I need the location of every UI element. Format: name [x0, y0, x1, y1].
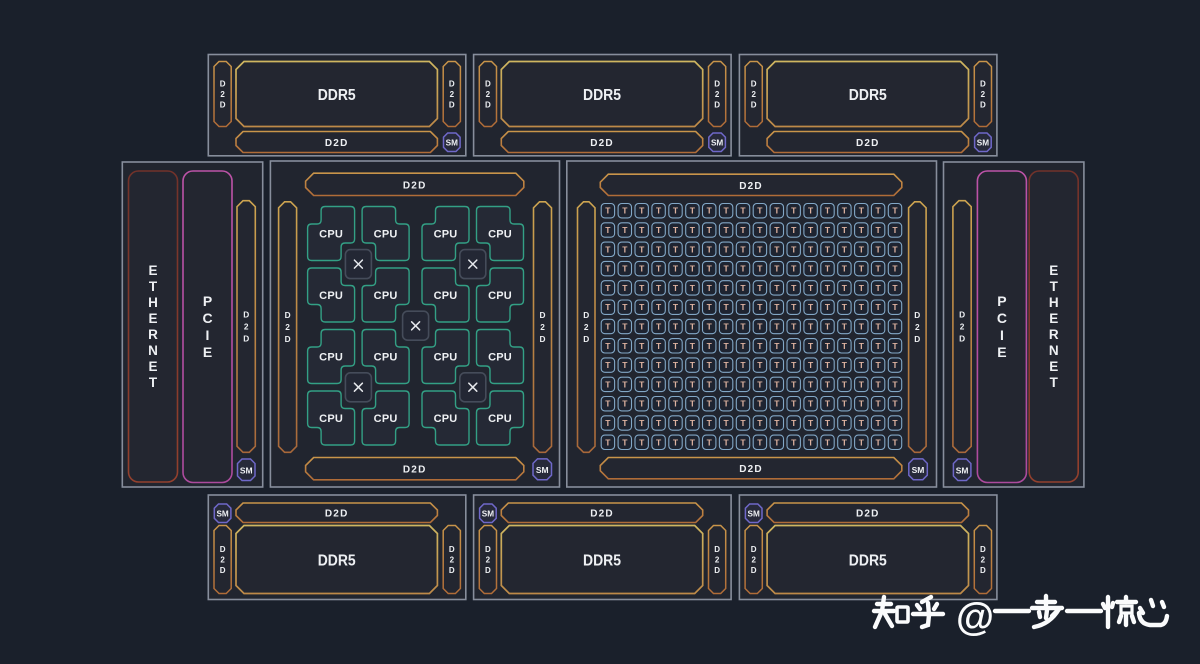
svg-text:T: T: [605, 341, 611, 351]
svg-text:T: T: [740, 264, 746, 274]
svg-text:T: T: [791, 225, 797, 235]
svg-text:T: T: [690, 379, 696, 389]
svg-text:T: T: [825, 341, 831, 351]
svg-text:T: T: [673, 399, 679, 409]
svg-text:T: T: [875, 341, 881, 351]
svg-text:T: T: [842, 225, 848, 235]
svg-text:H: H: [1049, 295, 1059, 310]
svg-text:D: D: [220, 545, 226, 554]
svg-text:2: 2: [220, 90, 225, 99]
svg-text:D: D: [285, 310, 291, 320]
svg-text:D2D: D2D: [590, 138, 614, 149]
svg-text:D: D: [449, 566, 455, 575]
svg-text:T: T: [808, 360, 814, 370]
svg-text:T: T: [825, 302, 831, 312]
svg-text:D: D: [714, 545, 720, 554]
svg-text:T: T: [707, 302, 713, 312]
svg-text:T: T: [740, 360, 746, 370]
svg-text:2: 2: [715, 555, 720, 564]
svg-text:D: D: [980, 566, 986, 575]
svg-text:T: T: [673, 379, 679, 389]
svg-text:D: D: [751, 79, 757, 88]
svg-text:T: T: [622, 322, 628, 332]
svg-text:E: E: [997, 344, 1006, 360]
svg-text:D: D: [714, 79, 720, 88]
svg-text:T: T: [656, 399, 662, 409]
svg-text:T: T: [622, 244, 628, 254]
svg-text:T: T: [690, 264, 696, 274]
svg-text:DDR5: DDR5: [583, 87, 621, 104]
svg-text:T: T: [774, 225, 780, 235]
svg-text:T: T: [875, 418, 881, 428]
svg-text:CPU: CPU: [319, 413, 343, 425]
svg-text:DDR5: DDR5: [318, 87, 356, 104]
svg-text:D: D: [914, 310, 920, 320]
svg-text:T: T: [149, 279, 158, 294]
svg-text:T: T: [690, 360, 696, 370]
svg-text:T: T: [842, 264, 848, 274]
svg-text:D2D: D2D: [403, 465, 427, 476]
svg-text:T: T: [673, 302, 679, 312]
svg-text:T: T: [757, 225, 763, 235]
svg-text:CPU: CPU: [374, 352, 398, 364]
svg-text:D2D: D2D: [739, 181, 763, 192]
svg-text:T: T: [723, 360, 729, 370]
svg-text:T: T: [723, 418, 729, 428]
svg-text:CPU: CPU: [374, 229, 398, 241]
svg-text:D: D: [914, 334, 920, 344]
svg-text:SM: SM: [977, 139, 989, 148]
svg-text:N: N: [1049, 343, 1059, 358]
svg-text:T: T: [605, 379, 611, 389]
svg-text:T: T: [149, 375, 158, 390]
svg-text:T: T: [605, 264, 611, 274]
svg-text:T: T: [707, 264, 713, 274]
svg-text:D: D: [980, 100, 986, 109]
svg-text:T: T: [774, 437, 780, 447]
svg-text:CPU: CPU: [434, 413, 458, 425]
svg-text:I: I: [206, 327, 210, 343]
svg-text:T: T: [622, 264, 628, 274]
svg-text:T: T: [774, 360, 780, 370]
svg-text:T: T: [605, 283, 611, 293]
svg-text:T: T: [723, 437, 729, 447]
svg-text:SM: SM: [536, 465, 549, 475]
svg-text:2: 2: [915, 322, 920, 332]
svg-text:T: T: [808, 264, 814, 274]
svg-text:E: E: [148, 359, 157, 374]
svg-text:2: 2: [450, 90, 455, 99]
svg-text:T: T: [774, 399, 780, 409]
svg-text:N: N: [148, 343, 158, 358]
svg-text:T: T: [656, 322, 662, 332]
svg-text:T: T: [723, 244, 729, 254]
svg-text:DDR5: DDR5: [318, 553, 356, 570]
svg-text:T: T: [707, 360, 713, 370]
svg-text:T: T: [639, 244, 645, 254]
svg-text:T: T: [875, 379, 881, 389]
svg-text:CPU: CPU: [374, 290, 398, 302]
svg-text:CPU: CPU: [434, 352, 458, 364]
svg-text:T: T: [656, 379, 662, 389]
svg-text:E: E: [1049, 311, 1058, 326]
svg-text:T: T: [639, 206, 645, 216]
svg-text:D: D: [285, 334, 291, 344]
svg-text:H: H: [148, 295, 158, 310]
svg-text:T: T: [707, 379, 713, 389]
svg-text:DDR5: DDR5: [849, 87, 887, 104]
svg-text:T: T: [673, 264, 679, 274]
svg-text:T: T: [639, 264, 645, 274]
svg-text:T: T: [605, 225, 611, 235]
svg-text:T: T: [892, 437, 898, 447]
svg-text:T: T: [673, 418, 679, 428]
svg-text:T: T: [774, 283, 780, 293]
svg-text:2: 2: [751, 90, 756, 99]
svg-text:2: 2: [244, 321, 249, 331]
svg-text:T: T: [656, 244, 662, 254]
svg-text:T: T: [707, 225, 713, 235]
svg-text:T: T: [808, 206, 814, 216]
svg-text:T: T: [825, 379, 831, 389]
svg-text:T: T: [825, 206, 831, 216]
svg-text:D: D: [714, 100, 720, 109]
svg-text:T: T: [707, 341, 713, 351]
svg-text:SM: SM: [216, 510, 228, 519]
svg-text:T: T: [639, 302, 645, 312]
svg-text:T: T: [791, 418, 797, 428]
svg-text:CPU: CPU: [434, 290, 458, 302]
svg-text:C: C: [202, 310, 212, 326]
svg-text:E: E: [203, 344, 212, 360]
svg-text:D: D: [959, 333, 965, 343]
svg-text:D: D: [449, 545, 455, 554]
svg-text:T: T: [622, 206, 628, 216]
svg-text:T: T: [707, 418, 713, 428]
svg-text:T: T: [808, 418, 814, 428]
svg-text:T: T: [842, 360, 848, 370]
svg-text:T: T: [690, 206, 696, 216]
svg-text:T: T: [892, 399, 898, 409]
svg-text:T: T: [757, 264, 763, 274]
svg-text:T: T: [892, 283, 898, 293]
svg-text:T: T: [757, 341, 763, 351]
svg-text:T: T: [656, 341, 662, 351]
svg-text:D: D: [220, 79, 226, 88]
svg-text:T: T: [875, 399, 881, 409]
svg-text:T: T: [791, 264, 797, 274]
svg-text:T: T: [605, 418, 611, 428]
svg-text:D: D: [449, 100, 455, 109]
svg-text:T: T: [842, 399, 848, 409]
svg-text:T: T: [707, 283, 713, 293]
svg-text:T: T: [622, 302, 628, 312]
svg-text:T: T: [808, 399, 814, 409]
svg-text:T: T: [859, 283, 865, 293]
svg-text:T: T: [791, 206, 797, 216]
svg-text:T: T: [639, 437, 645, 447]
svg-text:T: T: [892, 418, 898, 428]
svg-text:SM: SM: [482, 510, 494, 519]
svg-text:T: T: [842, 437, 848, 447]
svg-text:T: T: [673, 360, 679, 370]
svg-text:T: T: [740, 322, 746, 332]
svg-text:T: T: [690, 399, 696, 409]
svg-text:T: T: [605, 437, 611, 447]
svg-text:T: T: [723, 264, 729, 274]
svg-text:T: T: [791, 283, 797, 293]
svg-text:T: T: [622, 379, 628, 389]
svg-text:T: T: [791, 341, 797, 351]
svg-text:T: T: [740, 206, 746, 216]
svg-text:T: T: [707, 206, 713, 216]
svg-text:T: T: [825, 225, 831, 235]
svg-text:T: T: [740, 379, 746, 389]
svg-text:CPU: CPU: [374, 413, 398, 425]
svg-text:T: T: [774, 322, 780, 332]
svg-text:T: T: [757, 322, 763, 332]
svg-text:T: T: [740, 399, 746, 409]
svg-text:T: T: [859, 322, 865, 332]
svg-text:T: T: [605, 360, 611, 370]
svg-text:T: T: [656, 264, 662, 274]
svg-text:T: T: [690, 341, 696, 351]
svg-text:T: T: [605, 302, 611, 312]
svg-text:T: T: [690, 244, 696, 254]
svg-text:R: R: [148, 327, 158, 342]
svg-text:T: T: [808, 302, 814, 312]
svg-text:T: T: [825, 283, 831, 293]
svg-text:T: T: [808, 379, 814, 389]
svg-text:T: T: [875, 437, 881, 447]
svg-text:D: D: [751, 545, 757, 554]
svg-text:T: T: [825, 360, 831, 370]
svg-text:T: T: [639, 283, 645, 293]
svg-text:D: D: [220, 566, 226, 575]
svg-text:T: T: [690, 225, 696, 235]
svg-text:T: T: [673, 206, 679, 216]
svg-text:T: T: [892, 360, 898, 370]
svg-text:T: T: [656, 360, 662, 370]
svg-text:T: T: [875, 283, 881, 293]
svg-text:T: T: [808, 341, 814, 351]
svg-text:T: T: [740, 283, 746, 293]
svg-text:T: T: [859, 206, 865, 216]
svg-text:T: T: [1050, 375, 1059, 390]
svg-text:T: T: [656, 283, 662, 293]
svg-text:R: R: [1049, 327, 1059, 342]
svg-text:T: T: [740, 225, 746, 235]
svg-text:T: T: [825, 399, 831, 409]
svg-text:T: T: [690, 418, 696, 428]
svg-text:T: T: [690, 302, 696, 312]
svg-text:T: T: [723, 225, 729, 235]
svg-text:T: T: [825, 264, 831, 274]
svg-text:T: T: [875, 322, 881, 332]
svg-text:T: T: [808, 244, 814, 254]
svg-text:SM: SM: [711, 139, 723, 148]
svg-text:CPU: CPU: [434, 229, 458, 241]
svg-text:I: I: [1000, 327, 1004, 343]
svg-text:T: T: [757, 360, 763, 370]
svg-text:2: 2: [220, 555, 225, 564]
svg-text:T: T: [1050, 279, 1059, 294]
svg-text:CPU: CPU: [488, 413, 512, 425]
svg-text:T: T: [859, 302, 865, 312]
svg-text:T: T: [774, 264, 780, 274]
svg-text:2: 2: [450, 555, 455, 564]
svg-text:D: D: [220, 100, 226, 109]
svg-text:T: T: [740, 244, 746, 254]
svg-text:T: T: [774, 418, 780, 428]
svg-text:T: T: [639, 360, 645, 370]
svg-text:T: T: [859, 418, 865, 428]
svg-text:T: T: [673, 244, 679, 254]
svg-text:T: T: [673, 225, 679, 235]
svg-text:T: T: [656, 302, 662, 312]
svg-text:T: T: [723, 206, 729, 216]
svg-text:D: D: [980, 545, 986, 554]
svg-text:T: T: [875, 360, 881, 370]
svg-text:T: T: [774, 302, 780, 312]
svg-text:DDR5: DDR5: [849, 553, 887, 570]
svg-text:T: T: [723, 302, 729, 312]
svg-text:T: T: [656, 437, 662, 447]
svg-text:T: T: [757, 399, 763, 409]
svg-text:D: D: [485, 545, 491, 554]
svg-text:D: D: [485, 100, 491, 109]
svg-text:T: T: [740, 302, 746, 312]
svg-text:D2D: D2D: [590, 509, 614, 520]
svg-text:T: T: [774, 379, 780, 389]
svg-text:T: T: [622, 283, 628, 293]
svg-text:2: 2: [486, 90, 491, 99]
svg-text:T: T: [842, 341, 848, 351]
svg-text:T: T: [605, 244, 611, 254]
svg-text:T: T: [723, 399, 729, 409]
svg-text:T: T: [639, 379, 645, 389]
svg-text:D2D: D2D: [856, 509, 880, 520]
svg-text:T: T: [859, 225, 865, 235]
svg-text:T: T: [639, 418, 645, 428]
svg-text:D2D: D2D: [739, 464, 763, 475]
svg-text:T: T: [842, 302, 848, 312]
svg-text:C: C: [997, 310, 1007, 326]
svg-text:T: T: [622, 418, 628, 428]
svg-text:T: T: [842, 283, 848, 293]
svg-text:T: T: [622, 360, 628, 370]
svg-text:T: T: [740, 437, 746, 447]
svg-text:T: T: [622, 225, 628, 235]
svg-text:T: T: [757, 244, 763, 254]
svg-text:2: 2: [486, 555, 491, 564]
svg-text:CPU: CPU: [319, 229, 343, 241]
svg-text:T: T: [859, 437, 865, 447]
svg-text:T: T: [605, 322, 611, 332]
svg-text:T: T: [825, 418, 831, 428]
svg-text:T: T: [875, 302, 881, 312]
svg-text:D: D: [243, 333, 249, 343]
svg-text:D: D: [449, 79, 455, 88]
svg-text:T: T: [673, 283, 679, 293]
svg-text:CPU: CPU: [488, 352, 512, 364]
svg-text:2: 2: [285, 322, 290, 332]
svg-text:T: T: [842, 244, 848, 254]
svg-text:SM: SM: [446, 139, 458, 148]
svg-text:T: T: [842, 418, 848, 428]
svg-text:T: T: [757, 379, 763, 389]
svg-text:CPU: CPU: [319, 290, 343, 302]
svg-text:SM: SM: [912, 465, 925, 475]
svg-text:T: T: [723, 379, 729, 389]
svg-text:T: T: [690, 283, 696, 293]
svg-text:D: D: [714, 566, 720, 575]
svg-text:CPU: CPU: [488, 229, 512, 241]
svg-text:T: T: [825, 322, 831, 332]
svg-text:T: T: [639, 322, 645, 332]
svg-text:T: T: [605, 399, 611, 409]
svg-text:T: T: [622, 341, 628, 351]
svg-text:T: T: [808, 283, 814, 293]
svg-text:T: T: [892, 225, 898, 235]
svg-text:T: T: [808, 225, 814, 235]
svg-text:T: T: [774, 244, 780, 254]
svg-text:T: T: [791, 244, 797, 254]
svg-text:D2D: D2D: [403, 180, 427, 191]
svg-text:T: T: [808, 437, 814, 447]
svg-text:T: T: [825, 437, 831, 447]
svg-text:@: @: [956, 596, 994, 639]
svg-text:T: T: [723, 283, 729, 293]
svg-text:CPU: CPU: [488, 290, 512, 302]
svg-text:T: T: [875, 264, 881, 274]
svg-text:T: T: [859, 399, 865, 409]
svg-text:2: 2: [981, 90, 986, 99]
svg-text:T: T: [707, 399, 713, 409]
svg-text:2: 2: [584, 322, 589, 332]
svg-text:T: T: [842, 379, 848, 389]
svg-text:T: T: [859, 341, 865, 351]
svg-text:D2D: D2D: [856, 138, 880, 149]
svg-text:T: T: [842, 322, 848, 332]
svg-text:E: E: [148, 311, 157, 326]
svg-text:T: T: [859, 379, 865, 389]
svg-text:D2D: D2D: [325, 509, 349, 520]
svg-text:P: P: [997, 293, 1006, 309]
svg-text:T: T: [757, 283, 763, 293]
svg-text:SM: SM: [240, 465, 253, 475]
svg-text:SM: SM: [748, 510, 760, 519]
svg-text:T: T: [690, 322, 696, 332]
svg-text:T: T: [639, 225, 645, 235]
svg-text:T: T: [673, 322, 679, 332]
svg-text:T: T: [757, 206, 763, 216]
svg-text:T: T: [707, 437, 713, 447]
svg-text:D: D: [540, 310, 546, 320]
svg-text:D: D: [980, 79, 986, 88]
svg-text:E: E: [1049, 263, 1058, 278]
svg-text:T: T: [656, 418, 662, 428]
svg-text:D: D: [485, 566, 491, 575]
svg-text:D: D: [540, 334, 546, 344]
svg-text:T: T: [825, 244, 831, 254]
svg-text:T: T: [842, 206, 848, 216]
svg-text:T: T: [892, 244, 898, 254]
svg-text:2: 2: [960, 321, 965, 331]
svg-text:2: 2: [751, 555, 756, 564]
svg-text:T: T: [757, 437, 763, 447]
svg-text:T: T: [892, 206, 898, 216]
